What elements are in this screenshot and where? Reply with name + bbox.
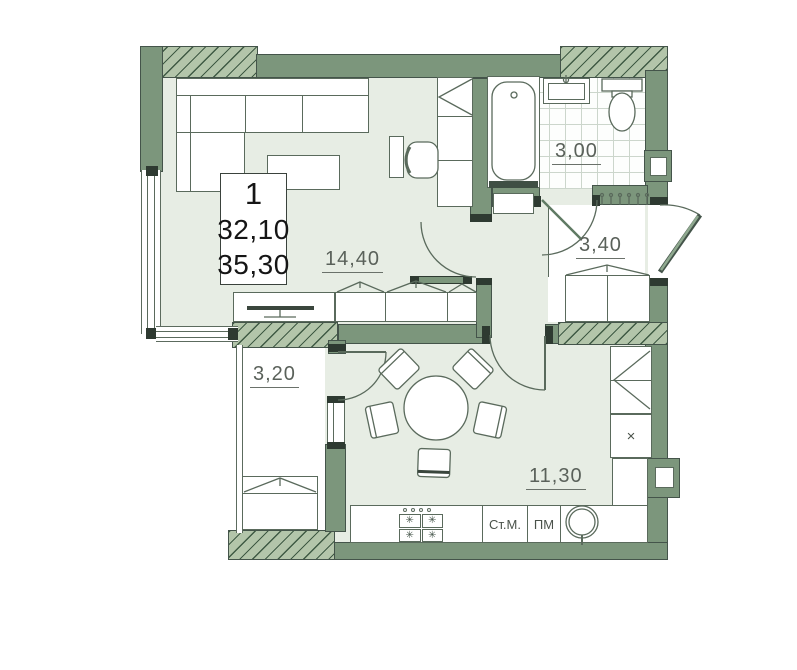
unit-info-box: 1 32,10 35,30 (220, 173, 287, 285)
wardrobe-opening-marks (337, 281, 476, 292)
wardrobe-fold-marks (439, 79, 472, 115)
dining-chair (452, 348, 494, 390)
area-label-living: 14,40 (322, 248, 383, 273)
plan-linework (0, 0, 797, 670)
kitchen-sink (566, 506, 598, 538)
dining-chair (378, 348, 420, 390)
dining-chair (418, 448, 451, 477)
area-label-balcony: 3,20 (250, 363, 299, 388)
kitchen-door-arc (490, 335, 545, 390)
dining-chair (473, 401, 507, 438)
coat-rack (601, 194, 649, 206)
bathtub-drain (511, 92, 517, 98)
unit-total-area: 35,30 (217, 247, 290, 282)
unit-living-area: 32,10 (217, 212, 290, 247)
hallway-wardrobe-marks (566, 265, 649, 275)
area-label-hallway: 3,40 (576, 234, 625, 259)
dining-table (404, 376, 468, 440)
floor-plan: × ✳ ✳ ✳ ✳ Ст.М. ПМ (0, 0, 797, 670)
area-label-kitchen: 11,30 (526, 465, 586, 490)
balcony-wardrobe-marks (244, 478, 316, 492)
fridge-opening-marks (614, 351, 650, 409)
office-chair-seat (407, 142, 438, 178)
bathtub-inner (492, 82, 535, 180)
unit-number: 1 (245, 176, 262, 212)
balcony-door-arc (338, 352, 386, 400)
dining-chair (365, 401, 399, 438)
entrance-door-arc (660, 205, 700, 215)
living-door-arc (421, 222, 476, 277)
entrance-door-leaf-fill (661, 216, 698, 270)
area-label-bathroom: 3,00 (552, 140, 601, 165)
toilet-bowl (609, 93, 635, 131)
toilet-tank (602, 79, 642, 91)
